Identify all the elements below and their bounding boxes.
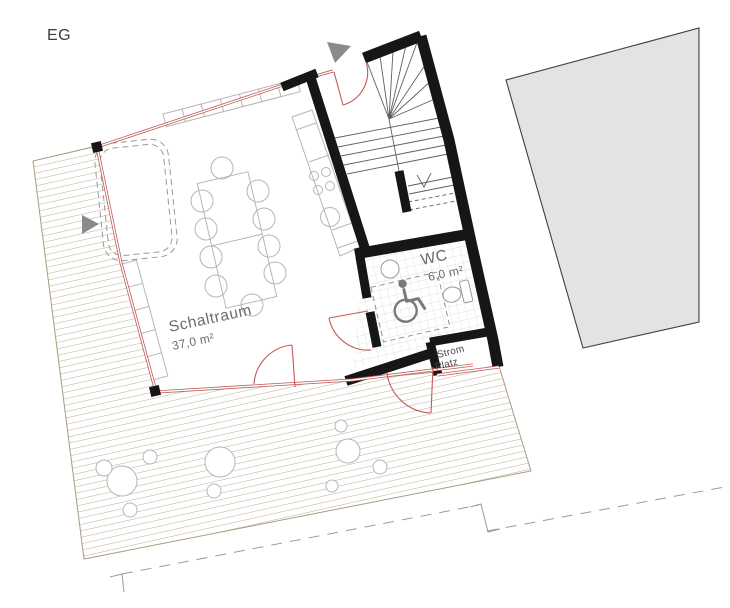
site-boundary-jog [470, 504, 500, 532]
entry-marker-top [327, 42, 351, 63]
meeting-table-group [191, 157, 286, 316]
floor-plan-canvas: EG Schaltraum 37,0 m² WC 6,0 m² Strom Pl… [0, 0, 730, 608]
stairs [335, 40, 456, 210]
stair-cut-line-dashed [408, 193, 456, 210]
plant [373, 460, 387, 474]
floor-label: EG [47, 27, 71, 44]
neighbor-building [506, 28, 699, 348]
floor-plan-page: EG Schaltraum 37,0 m² WC 6,0 m² Strom Pl… [0, 0, 730, 608]
plant [205, 447, 235, 477]
plant [123, 503, 137, 517]
wall-stair-spur [399, 171, 407, 212]
stair-direction-arrow [417, 173, 431, 187]
washbasin [381, 260, 399, 278]
plant [207, 484, 221, 498]
door-arc-terrace-left [254, 345, 295, 387]
plant [326, 480, 338, 492]
site-boundary-corner [110, 574, 124, 592]
plant [335, 420, 347, 432]
plant [96, 460, 112, 476]
door-arc-entry [334, 62, 368, 105]
plant [143, 450, 157, 464]
plant [336, 439, 360, 463]
stair-straight-treads [335, 118, 454, 194]
chair [211, 157, 233, 179]
